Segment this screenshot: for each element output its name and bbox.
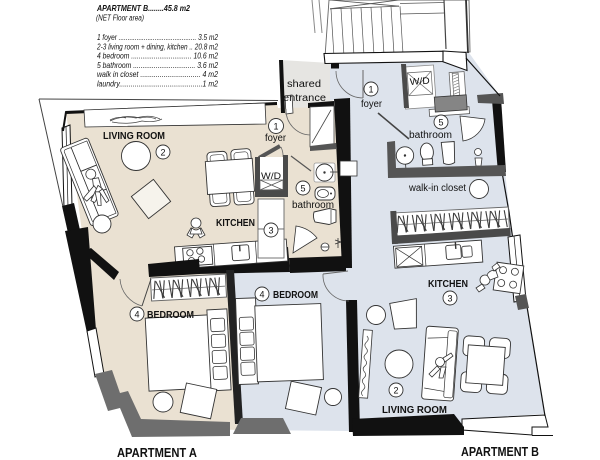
svg-text:2: 2: [394, 386, 399, 396]
svg-text:LIVING ROOM: LIVING ROOM: [382, 405, 447, 416]
svg-text:foyer: foyer: [265, 133, 287, 144]
svg-text:1: 1: [369, 85, 374, 95]
svg-text:5 bathroom ...................: 5 bathroom .............................…: [97, 61, 218, 70]
svg-text:5: 5: [439, 118, 444, 128]
svg-text:1: 1: [274, 122, 279, 132]
svg-text:walk in closet ...............: walk in closet .........................…: [97, 70, 218, 79]
svg-text:KITCHEN: KITCHEN: [216, 218, 255, 229]
svg-text:(NET Floor area): (NET Floor area): [96, 14, 144, 23]
svg-text:APARTMENT B........45.8 m2: APARTMENT B........45.8 m2: [96, 3, 190, 13]
svg-text:entrance: entrance: [283, 93, 326, 104]
svg-text:laundry.......................: laundry.................................…: [97, 80, 218, 89]
svg-text:5: 5: [301, 184, 306, 194]
svg-text:foyer: foyer: [361, 99, 383, 110]
svg-text:4: 4: [260, 290, 265, 300]
svg-text:3: 3: [269, 226, 274, 236]
svg-text:1 foyer ......................: 1 foyer ................................…: [97, 33, 218, 42]
svg-text:bathroom: bathroom: [409, 130, 452, 141]
svg-text:BEDROOM: BEDROOM: [147, 310, 194, 321]
svg-text:walk-in closet: walk-in closet: [408, 183, 466, 194]
svg-text:BEDROOM: BEDROOM: [273, 290, 318, 301]
svg-text:3: 3: [448, 294, 453, 304]
svg-text:4: 4: [135, 310, 140, 320]
svg-text:KITCHEN: KITCHEN: [428, 279, 468, 290]
svg-text:W/D: W/D: [409, 76, 430, 88]
svg-text:4 bedroom ....................: 4 bedroom ..............................…: [97, 52, 218, 61]
svg-text:LIVING ROOM: LIVING ROOM: [103, 131, 165, 142]
svg-text:2: 2: [161, 148, 166, 158]
svg-text:W/D: W/D: [261, 171, 281, 182]
svg-text:APARTMENT A: APARTMENT A: [117, 446, 197, 460]
svg-text:2-3 living room + dining, kitc: 2-3 living room + dining, kitchen .. 20.…: [96, 42, 218, 51]
svg-text:bathroom: bathroom: [292, 200, 334, 211]
svg-text:shared: shared: [287, 79, 321, 90]
svg-text:APARTMENT B: APARTMENT B: [461, 445, 539, 459]
